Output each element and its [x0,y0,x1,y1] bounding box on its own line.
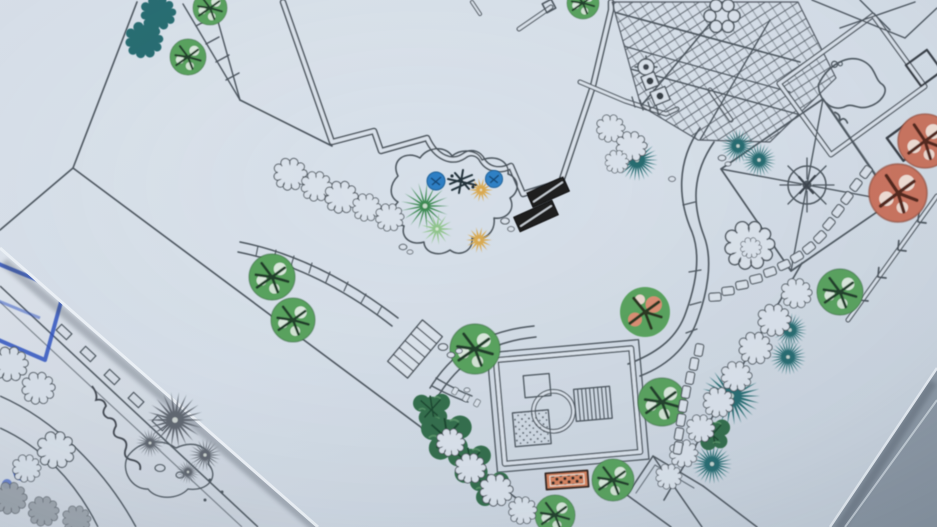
photo-vignette [0,0,937,527]
plan-photo-canvas [0,0,937,527]
photo-of-landscape-plan: Angled photograph of a printed landscape… [0,0,937,527]
